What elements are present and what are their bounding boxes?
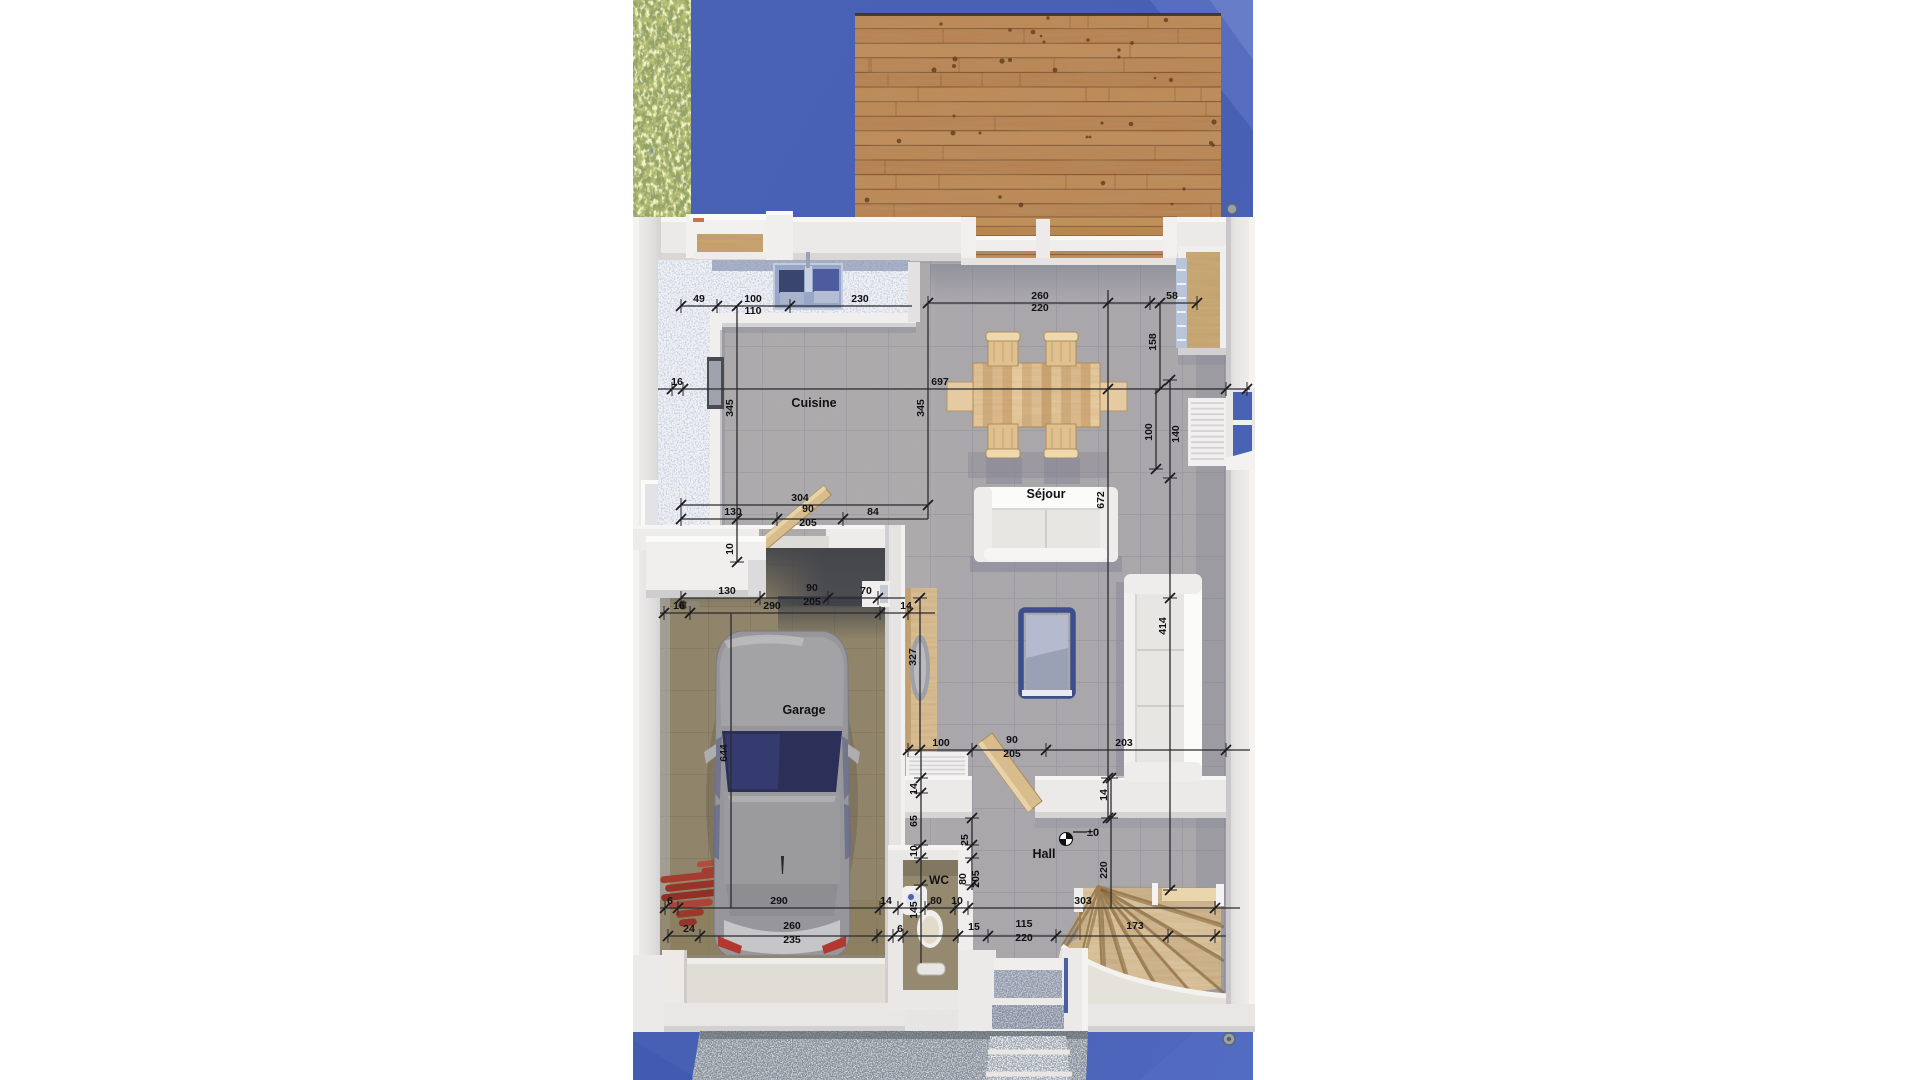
svg-text:80: 80 bbox=[930, 895, 942, 907]
svg-text:Garage: Garage bbox=[782, 703, 825, 717]
svg-text:49: 49 bbox=[693, 293, 705, 305]
svg-text:345: 345 bbox=[915, 399, 927, 417]
svg-text:10: 10 bbox=[724, 543, 736, 555]
svg-text:110: 110 bbox=[745, 305, 762, 317]
svg-text:205: 205 bbox=[803, 596, 821, 608]
svg-text:6: 6 bbox=[667, 895, 673, 907]
svg-text:65: 65 bbox=[908, 815, 920, 827]
svg-text:697: 697 bbox=[931, 376, 949, 388]
svg-text:230: 230 bbox=[851, 293, 869, 305]
svg-text:327: 327 bbox=[907, 648, 919, 666]
svg-text:10: 10 bbox=[951, 895, 963, 907]
svg-text:70: 70 bbox=[860, 585, 872, 597]
svg-text:58: 58 bbox=[1166, 290, 1178, 302]
svg-text:84: 84 bbox=[867, 506, 879, 518]
svg-text:25: 25 bbox=[959, 834, 971, 846]
svg-text:290: 290 bbox=[763, 600, 781, 612]
svg-text:220: 220 bbox=[1098, 861, 1110, 879]
svg-text:90: 90 bbox=[806, 582, 818, 594]
svg-text:345: 345 bbox=[724, 399, 736, 417]
svg-text:158: 158 bbox=[1147, 333, 1159, 351]
svg-text:14: 14 bbox=[1098, 789, 1110, 801]
svg-text:Séjour: Séjour bbox=[1027, 487, 1066, 501]
svg-text:Cuisine: Cuisine bbox=[791, 396, 836, 410]
svg-text:115: 115 bbox=[1016, 918, 1033, 930]
svg-text:130: 130 bbox=[718, 585, 736, 597]
svg-text:6: 6 bbox=[897, 923, 903, 935]
svg-text:145: 145 bbox=[908, 901, 920, 919]
svg-text:260: 260 bbox=[1031, 290, 1049, 302]
svg-text:672: 672 bbox=[1095, 491, 1107, 509]
svg-text:290: 290 bbox=[770, 895, 788, 907]
svg-text:80: 80 bbox=[957, 873, 969, 885]
svg-text:220: 220 bbox=[1015, 932, 1033, 944]
svg-text:644: 644 bbox=[718, 744, 730, 762]
svg-text:235: 235 bbox=[783, 934, 801, 946]
svg-text:90: 90 bbox=[1006, 734, 1018, 746]
svg-text:14: 14 bbox=[900, 600, 912, 612]
svg-text:24: 24 bbox=[683, 923, 695, 935]
svg-text:205: 205 bbox=[799, 517, 817, 529]
svg-text:14: 14 bbox=[908, 783, 920, 795]
svg-text:90: 90 bbox=[802, 503, 814, 515]
svg-text:100: 100 bbox=[744, 293, 762, 305]
svg-text:220: 220 bbox=[1031, 302, 1049, 314]
svg-text:Hall: Hall bbox=[1033, 847, 1056, 861]
svg-text:±0: ±0 bbox=[1087, 827, 1099, 839]
svg-text:15: 15 bbox=[968, 921, 980, 933]
svg-text:16: 16 bbox=[671, 376, 683, 388]
svg-text:100: 100 bbox=[1143, 423, 1155, 441]
svg-text:WC: WC bbox=[929, 873, 949, 887]
svg-text:140: 140 bbox=[1170, 425, 1182, 443]
svg-text:10: 10 bbox=[908, 845, 920, 857]
svg-text:260: 260 bbox=[783, 920, 801, 932]
svg-text:205: 205 bbox=[970, 870, 982, 888]
svg-text:303: 303 bbox=[1074, 895, 1092, 907]
svg-text:205: 205 bbox=[1003, 748, 1021, 760]
svg-text:100: 100 bbox=[932, 737, 950, 749]
svg-text:16: 16 bbox=[673, 600, 685, 612]
svg-text:414: 414 bbox=[1157, 617, 1169, 635]
svg-text:14: 14 bbox=[880, 895, 892, 907]
svg-text:203: 203 bbox=[1115, 737, 1133, 749]
svg-text:173: 173 bbox=[1126, 920, 1144, 932]
